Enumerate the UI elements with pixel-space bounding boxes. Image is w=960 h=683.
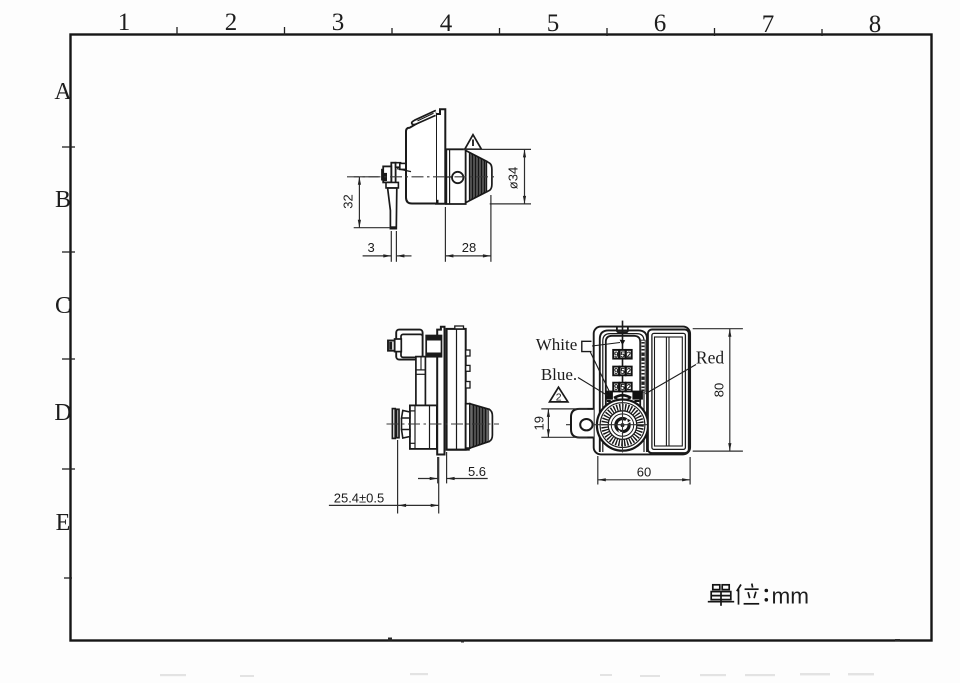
svg-text:9: 9	[614, 367, 619, 376]
svg-text:2: 2	[627, 383, 632, 392]
svg-text:6: 6	[654, 10, 667, 37]
svg-text:5: 5	[547, 10, 560, 37]
svg-text:5.6: 5.6	[468, 464, 486, 479]
svg-text:2: 2	[556, 392, 562, 404]
svg-text:C: C	[55, 293, 71, 319]
svg-text:28: 28	[462, 240, 476, 255]
svg-text:2: 2	[627, 367, 632, 376]
svg-text:5: 5	[620, 367, 625, 376]
svg-text:E: E	[56, 510, 71, 536]
svg-text:5: 5	[620, 350, 625, 359]
svg-text:32: 32	[341, 194, 356, 208]
svg-text:19: 19	[532, 416, 547, 430]
svg-text:mm: mm	[772, 584, 810, 609]
svg-text:A: A	[54, 79, 72, 105]
svg-text:1: 1	[118, 9, 131, 36]
svg-text:2: 2	[225, 9, 238, 36]
svg-text:White: White	[536, 335, 578, 354]
svg-text:60: 60	[637, 465, 651, 480]
svg-text:D: D	[54, 400, 71, 426]
svg-text:Blue.: Blue.	[541, 365, 577, 384]
svg-text:7: 7	[762, 11, 775, 38]
svg-text:2: 2	[627, 350, 632, 359]
svg-text:3: 3	[368, 240, 375, 255]
svg-text:ø34: ø34	[506, 167, 521, 189]
svg-text:25.4±0.5: 25.4±0.5	[334, 491, 385, 506]
svg-text:B: B	[55, 187, 71, 213]
svg-text:80: 80	[712, 383, 727, 397]
svg-text:3: 3	[332, 9, 345, 36]
svg-text:9: 9	[614, 350, 619, 359]
svg-text:Red: Red	[696, 348, 724, 368]
svg-text:8: 8	[869, 11, 882, 38]
svg-text:5: 5	[620, 383, 625, 392]
svg-text:4: 4	[440, 10, 453, 37]
svg-text:9: 9	[614, 383, 619, 392]
